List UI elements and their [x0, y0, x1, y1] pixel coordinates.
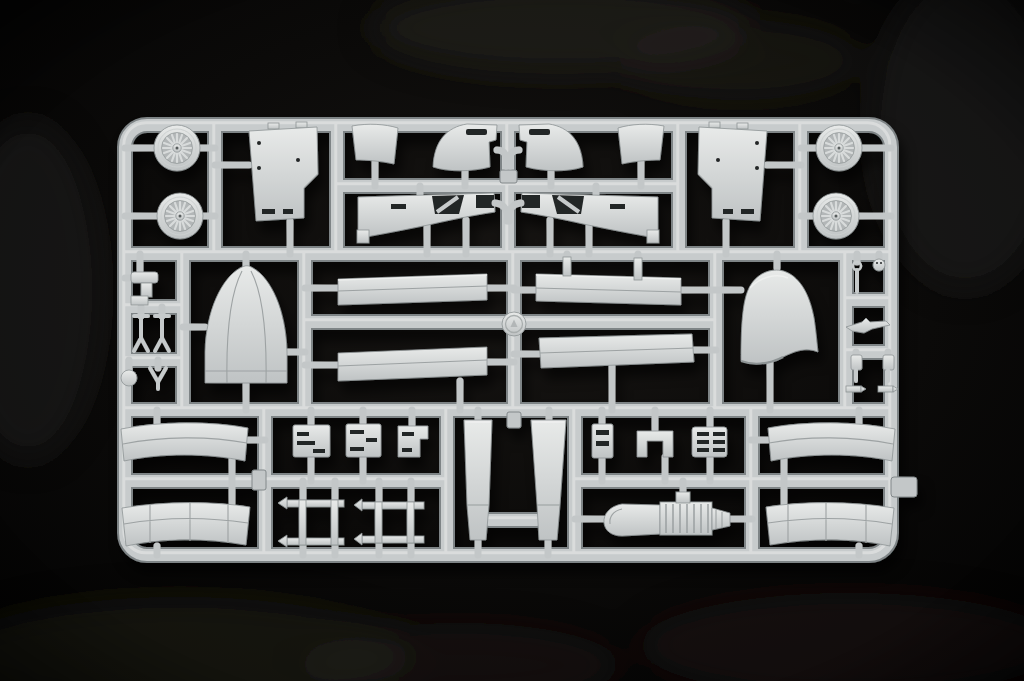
sprue-photo-canvas: [0, 0, 1024, 681]
vignette: [0, 0, 1024, 681]
photo-frame: [0, 0, 1024, 681]
